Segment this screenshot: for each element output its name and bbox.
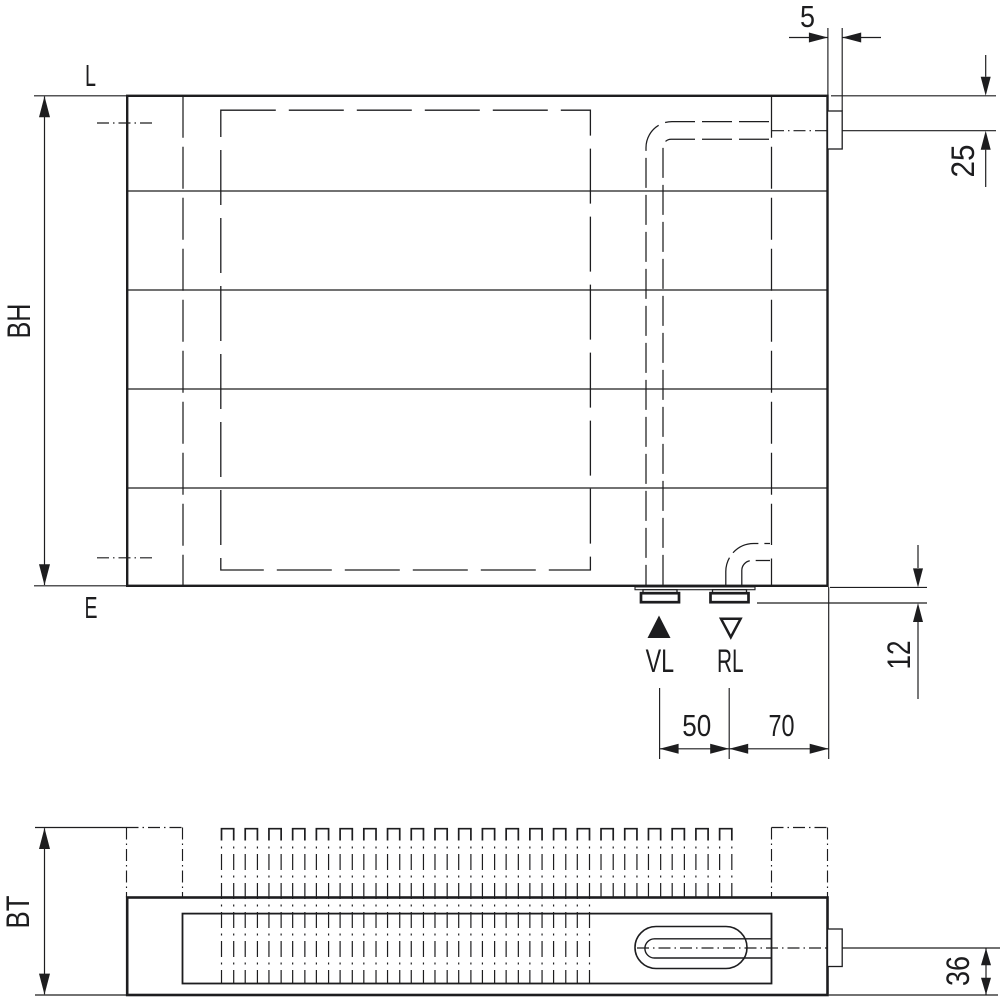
svg-text:25: 25 — [945, 145, 981, 178]
svg-text:RL: RL — [717, 643, 744, 679]
svg-text:BH: BH — [1, 304, 37, 339]
svg-text:L: L — [85, 58, 96, 93]
svg-text:12: 12 — [881, 641, 917, 670]
svg-text:E: E — [85, 590, 98, 625]
svg-text:BT: BT — [0, 896, 36, 929]
svg-text:5: 5 — [800, 0, 815, 34]
svg-text:70: 70 — [769, 708, 795, 743]
svg-text:50: 50 — [682, 708, 711, 743]
svg-text:36: 36 — [940, 956, 976, 986]
svg-text:VL: VL — [646, 643, 675, 679]
